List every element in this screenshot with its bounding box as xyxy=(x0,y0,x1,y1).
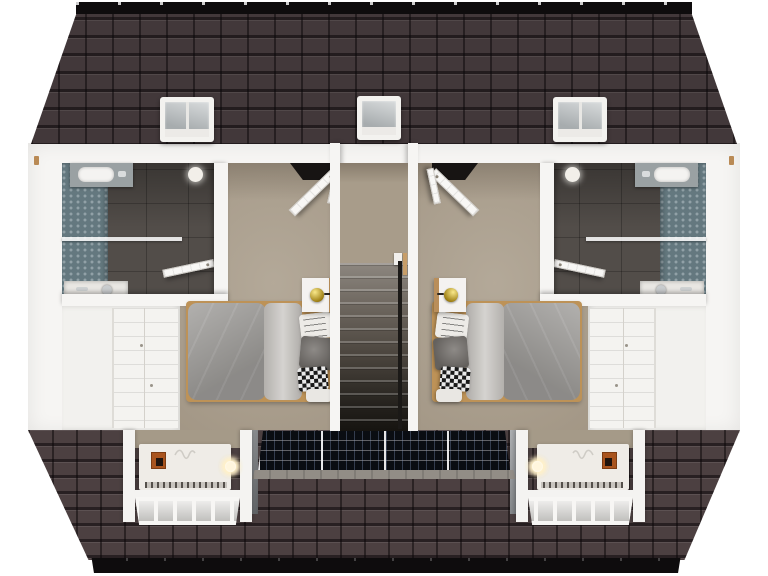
shower-glass-screen xyxy=(62,237,182,241)
bed-sheet xyxy=(466,303,504,400)
ensuite-bathroom xyxy=(540,163,706,306)
door-knob xyxy=(435,174,439,178)
handrail xyxy=(398,261,402,429)
sink-tap xyxy=(118,171,126,177)
dormer-wall xyxy=(516,430,528,522)
landing-carpet xyxy=(340,163,408,263)
shower-tap xyxy=(680,287,692,291)
downlight xyxy=(225,461,236,472)
ceiling-light xyxy=(188,167,203,182)
bed-duvet xyxy=(188,303,266,400)
window-ledge xyxy=(135,490,240,497)
roof-window-left xyxy=(160,97,214,142)
wardrobe-door-split xyxy=(144,308,145,428)
dormer-wall xyxy=(240,430,252,522)
ensuite-bathroom xyxy=(62,163,228,306)
heater-cabinet xyxy=(537,444,629,490)
vent-grille xyxy=(541,482,623,488)
bathroom-door-open xyxy=(553,259,606,278)
dormer-window-band xyxy=(135,497,240,525)
solar-stone-sill xyxy=(252,470,516,479)
roof-window-sill xyxy=(558,129,602,137)
solar-panel-array xyxy=(258,431,510,471)
downlight xyxy=(532,461,543,472)
wavy-doodle xyxy=(571,447,595,461)
stair-hall xyxy=(330,143,418,433)
roof-window-right xyxy=(553,97,607,142)
dormer-bay-left xyxy=(123,430,252,533)
heater-cabinet xyxy=(139,444,231,490)
sink-counter xyxy=(70,163,133,187)
roof-window-sill xyxy=(362,127,396,135)
bottom-fascia xyxy=(88,558,684,573)
wardrobe-door-split xyxy=(623,308,624,428)
pillow-dark-gray xyxy=(433,336,470,371)
bed-duvet xyxy=(502,303,580,400)
lamp-wire xyxy=(437,293,444,295)
wardrobe-handle xyxy=(615,384,618,387)
pillow-white xyxy=(306,389,332,402)
wardrobe-handle xyxy=(140,344,143,347)
artwork-motif xyxy=(156,458,163,466)
roof-ridge xyxy=(76,2,692,14)
window-ledge xyxy=(528,490,633,497)
pillow-white xyxy=(436,389,462,402)
sink-basin xyxy=(78,167,114,182)
door-knob xyxy=(206,263,210,267)
dormer-wall xyxy=(633,430,645,522)
dormer-bay-right xyxy=(516,430,645,533)
wardrobe-doors xyxy=(112,308,178,428)
dormer-window-band xyxy=(528,497,633,525)
floor-plan-render xyxy=(0,0,768,576)
bathroom-wall xyxy=(540,163,554,306)
table-lamp-gold xyxy=(310,288,324,302)
wardrobe-handle xyxy=(625,344,628,347)
wardrobe-handle xyxy=(150,384,153,387)
stair-door-jamb xyxy=(403,253,407,275)
artwork-motif xyxy=(605,458,612,466)
sink-basin xyxy=(654,167,690,182)
dormer-wall xyxy=(123,430,135,522)
shower-tap xyxy=(76,287,88,291)
roof-window-center xyxy=(357,96,401,140)
sink-tap xyxy=(642,171,650,177)
bed-sheet xyxy=(264,303,302,400)
wavy-doodle xyxy=(173,447,197,461)
vent-grille xyxy=(145,482,227,488)
bathroom-wall xyxy=(214,163,228,306)
stairwell-wall xyxy=(330,143,340,433)
built-in-wardrobe xyxy=(588,306,706,430)
bedroom-suite-right xyxy=(418,143,740,433)
shower-glass-screen xyxy=(586,237,706,241)
built-in-wardrobe xyxy=(62,306,180,430)
stairwell-wall xyxy=(408,143,418,433)
table-lamp-gold xyxy=(444,288,458,302)
sink-counter xyxy=(635,163,698,187)
roof-window-sill xyxy=(165,129,209,137)
bathroom-door-open xyxy=(162,259,215,278)
orange-artwork xyxy=(151,452,166,469)
orange-artwork xyxy=(602,452,617,469)
bedroom-suite-left xyxy=(28,143,350,433)
nightstand xyxy=(434,278,466,312)
ceiling-light xyxy=(565,167,580,182)
door-knob xyxy=(558,263,562,267)
